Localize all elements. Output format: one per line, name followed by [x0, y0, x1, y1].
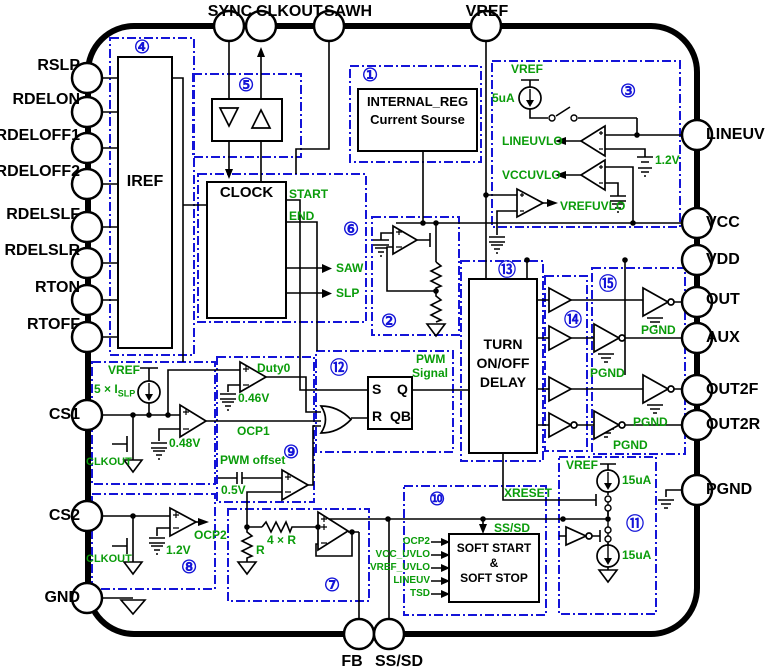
pgnd-label-3: PGND — [633, 415, 668, 429]
pin-label-pgnd: PGND — [706, 480, 752, 499]
iref-box — [118, 57, 172, 348]
delay-line1: TURN — [469, 336, 537, 352]
pin-label-rdeloff2: RDELOFF2 — [0, 162, 80, 181]
latch-q-label: Q — [397, 381, 408, 397]
pin-label-clkout: CLKOUT — [256, 2, 320, 21]
block-number-7: ⑦ — [324, 575, 340, 595]
signal-saw: SAW — [336, 261, 363, 275]
pin-label-cs1: CS1 — [49, 405, 80, 424]
predriver4-icon — [549, 413, 571, 437]
ic-block-diagram: SYNC CLKOUT SAWH VREF RSLP RDELON RDELOF… — [0, 0, 780, 672]
pin-label-rton: RTON — [35, 278, 80, 297]
pin-label-rdelslf: RDELSLF — [6, 205, 80, 224]
ss-vref: VREF — [566, 458, 598, 472]
pgnd-label-1: PGND — [641, 323, 676, 337]
vrefuvlo-comparator-icon — [517, 189, 543, 217]
pin-label-out: OUT — [706, 290, 740, 309]
cs1-threshold: 0.48V — [169, 436, 200, 450]
pin-label-sssd: SS/SD — [368, 652, 430, 671]
signal-xreset: XRESET — [504, 486, 552, 500]
pgnd-label-2: PGND — [590, 366, 625, 380]
block-number-11: ⑪ — [626, 514, 644, 534]
soft-input-vcc-uvlo: VCC_UVLO — [376, 549, 430, 561]
out2r-driver-icon — [594, 411, 619, 439]
pin-label-rtoff: RTOFF — [27, 315, 80, 334]
ocp1-comparator-icon — [180, 405, 206, 437]
vccuvlo-comparator-icon — [581, 160, 605, 190]
signal-duty0: Duty0 — [257, 361, 290, 375]
signal-end: END — [289, 209, 314, 223]
ss-charge-current: 15uA — [622, 473, 651, 487]
signal-ocp1: OCP1 — [237, 424, 270, 438]
internal-reg-line2: Current Sourse — [358, 112, 477, 127]
soft-start-line2: & — [449, 556, 539, 570]
soft-input-ocp2: OCP2 — [403, 536, 430, 548]
signal-slp: SLP — [336, 286, 359, 300]
sync-buffer-box — [212, 99, 282, 141]
reg-opamp-icon — [393, 226, 417, 254]
clock-box — [207, 182, 286, 318]
pin-label-out2r: OUT2R — [706, 415, 760, 434]
soft-start-line1: SOFT START — [449, 541, 539, 555]
signal-pwm-offset: PWM offset — [220, 453, 285, 467]
pin-label-out2f: OUT2F — [706, 380, 758, 399]
cs1-islp: 5 × ISLP — [94, 382, 135, 400]
block-number-15: ⑮ — [599, 274, 617, 294]
internal-reg-line1: INTERNAL_REG — [358, 94, 477, 109]
clock-title: CLOCK — [207, 184, 286, 201]
block-number-1: ① — [362, 65, 378, 85]
uvlo-1p2v: 1.2V — [655, 153, 680, 167]
out-driver-icon — [643, 288, 668, 316]
aux-driver-icon — [594, 324, 619, 352]
pin-label-rdelslr: RDELSLR — [4, 241, 80, 260]
signal-start: START — [289, 187, 328, 201]
block-number-14: ⑭ — [564, 310, 582, 330]
uvlo-vref: VREF — [511, 62, 543, 76]
block-number-8: ⑧ — [181, 557, 197, 577]
or-gate-icon — [321, 406, 351, 433]
signal-sssd: SS/SD — [494, 521, 530, 535]
out2f-driver-icon — [643, 375, 668, 403]
block-number-5: ⑤ — [238, 75, 254, 95]
delay-line3: DELAY — [469, 374, 537, 390]
pin-label-rdelon: RDELON — [12, 90, 80, 109]
pin-label-rdeloff1: RDELOFF1 — [0, 126, 80, 145]
signal-vccuvlo: VCCUVLO — [502, 168, 561, 182]
ss-inverter-icon — [566, 527, 586, 545]
latch-s-label: S — [372, 381, 381, 397]
ocp2-comparator-icon — [170, 508, 196, 536]
block-number-2: ② — [381, 311, 397, 331]
error-amp-icon — [318, 512, 348, 550]
latch-qb-label: QB — [390, 408, 411, 424]
block-number-13: ⑬ — [498, 260, 516, 280]
signal-pwm-line1: PWM — [416, 352, 445, 366]
block-number-6: ⑥ — [343, 219, 359, 239]
signal-lineuvlo: LINEUVLO — [502, 134, 563, 148]
pin-label-lineuv: LINEUV — [706, 125, 765, 144]
pin-label-vref: VREF — [455, 2, 519, 21]
signal-ocp2: OCP2 — [194, 528, 227, 542]
cs1-vref: VREF — [108, 363, 140, 377]
block-number-12: ⑫ — [330, 358, 348, 378]
lineuvlo-comparator-icon — [581, 126, 605, 156]
block-number-9: ⑨ — [283, 442, 299, 462]
pgnd-label-4: PGND — [613, 438, 648, 452]
block-number-10: ⑩ — [429, 489, 445, 509]
predriver3-icon — [549, 377, 571, 401]
feedback-r: R — [256, 543, 265, 557]
offset-voltage: 0.5V — [221, 483, 246, 497]
duty0-threshold: 0.46V — [238, 391, 269, 405]
signal-pwm-line2: Signal — [412, 366, 448, 380]
ss-discharge-current: 15uA — [622, 548, 651, 562]
feedback-4r: 4 × R — [267, 533, 296, 547]
block-number-4: ④ — [134, 37, 150, 57]
predriver1-icon — [549, 288, 571, 312]
signal-vrefuvlo: VREFUVLO — [560, 199, 625, 213]
soft-start-line3: SOFT STOP — [449, 571, 539, 585]
pin-label-vdd: VDD — [706, 250, 740, 269]
pin-label-sync: SYNC — [198, 2, 262, 21]
uvlo-5ua: 5uA — [492, 91, 515, 105]
soft-input-lineuv: LINEUV — [393, 575, 430, 587]
soft-input-vref-uvlo: VREF_UVLO — [370, 562, 430, 574]
soft-input-tsd: TSD — [410, 588, 430, 600]
cs2-clkout: CLKOUT — [86, 553, 132, 565]
delay-line2: ON/OFF — [469, 355, 537, 371]
pin-label-sawh: SAWH — [316, 2, 380, 21]
pin-label-vcc: VCC — [706, 213, 740, 232]
pin-label-gnd: GND — [44, 588, 80, 607]
block-number-3: ③ — [620, 81, 636, 101]
pin-label-cs2: CS2 — [49, 506, 80, 525]
pwm-offset-comparator-icon — [282, 470, 308, 500]
iref-title: IREF — [118, 173, 172, 191]
cs1-clkout: CLKOUT — [86, 456, 132, 468]
pin-label-aux: AUX — [706, 328, 740, 347]
cs2-threshold: 1.2V — [166, 543, 191, 557]
latch-r-label: R — [372, 408, 382, 424]
pin-label-rslp: RSLP — [37, 56, 80, 75]
